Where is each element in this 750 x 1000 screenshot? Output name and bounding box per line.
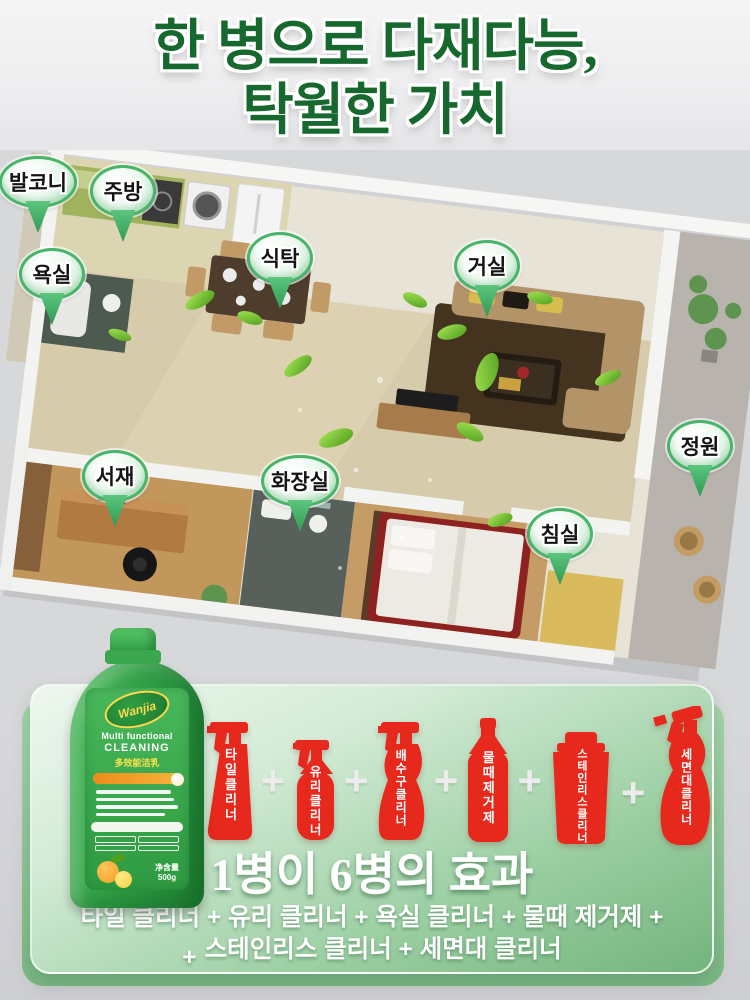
room-label: 발코니 <box>9 167 67 197</box>
room-label: 침실 <box>541 519 580 549</box>
bottle-label: 물때제거제 <box>478 751 497 826</box>
spray-bottles-row: 타일클리너 + 유리클리너 + 배수구클리너 + <box>206 702 714 846</box>
pin-tail-icon <box>25 201 51 233</box>
pin-tail-icon <box>474 285 500 317</box>
room-label: 거실 <box>468 251 507 281</box>
room-pin-toilet: 화장실 <box>261 455 339 532</box>
plus-sign: + <box>434 760 459 802</box>
washing-machine <box>184 181 231 230</box>
formula-line-2: +스테인리스 클리너 + 세면대 클리너 <box>32 934 712 966</box>
brand-logo: Wanjia <box>101 685 174 735</box>
title-line-2: 탁월한 가치 <box>0 80 750 144</box>
room-pin-study: 서재 <box>82 450 148 527</box>
pin-tail-icon <box>39 293 65 325</box>
sink-cleaner-bottle-icon: 세면대클리너 <box>652 706 714 846</box>
label-feature-lines <box>96 790 177 816</box>
pin-tail-icon <box>267 277 293 309</box>
room-label: 화장실 <box>271 466 329 496</box>
bed <box>361 511 533 640</box>
room-label: 식탁 <box>261 243 300 273</box>
room-label: 주방 <box>104 176 143 206</box>
plus-sign: + <box>182 944 196 971</box>
pin-tail-icon <box>287 500 313 532</box>
room-pin-kitchen: 주방 <box>90 165 156 242</box>
bottle-label: 스테인리스클리너 <box>573 748 589 844</box>
plus-sign: + <box>344 760 369 802</box>
bottle-label-panel: Wanjia Multi functional CLEANING 多效能洁乳 净… <box>85 688 189 890</box>
room-pin-dining-table: 식탁 <box>247 232 313 309</box>
bottle-neck <box>105 650 161 664</box>
room-pin-bathroom: 욕실 <box>19 248 85 325</box>
label-strip <box>91 822 183 832</box>
ad-image: 한 병으로 다재다능, 탁월한 가치 발코니 주방 욕실 식탁 거실 정원 서재… <box>0 0 750 1000</box>
room-pin-balcony: 발코니 <box>0 156 77 233</box>
pin-tail-icon <box>687 465 713 497</box>
page-title: 한 병으로 다재다능, 탁월한 가치 <box>0 16 750 144</box>
room-pin-bedroom: 침실 <box>527 508 593 585</box>
pin-tail-icon <box>102 495 128 527</box>
bottle-label: 유리클리너 <box>305 765 324 838</box>
product-name-en: CLEANING <box>104 742 169 754</box>
room-pin-garden: 정원 <box>667 420 733 497</box>
net-weight: 净含量500g <box>155 863 179 883</box>
room-pin-living-room: 거실 <box>454 240 520 317</box>
pin-tail-icon <box>547 553 573 585</box>
title-line-1: 한 병으로 다재다능, <box>0 16 750 80</box>
stainless-cleaner-bottle-icon: 스테인리스클리너 <box>548 732 614 846</box>
drain-cleaner-bottle-icon: 배수구클리너 <box>375 714 427 846</box>
label-fruits: 净含量500g <box>85 855 189 890</box>
bottle-cap <box>110 628 156 652</box>
room-label: 정원 <box>681 431 720 461</box>
room-label: 서재 <box>96 461 135 491</box>
plus-sign: + <box>621 772 646 814</box>
product-name-cn: 多效能洁乳 <box>114 756 159 769</box>
product-name-en: Multi functional <box>101 731 172 741</box>
label-banner <box>93 773 180 784</box>
pin-tail-icon <box>110 210 136 242</box>
bottle-label: 배수구클리너 <box>393 749 410 827</box>
plus-sign: + <box>517 760 542 802</box>
lemon-icon <box>115 871 132 888</box>
tile-cleaner-bottle-icon: 타일클리너 <box>206 714 254 846</box>
glass-cleaner-bottle-icon: 유리클리너 <box>292 734 338 846</box>
label-table <box>95 836 178 852</box>
plus-sign: + <box>261 760 286 802</box>
bottle-label: 타일클리너 <box>221 748 240 823</box>
limescale-remover-bottle-icon: 물때제거제 <box>465 718 511 846</box>
bottle-label: 세면대클리너 <box>678 748 695 826</box>
formula-text: 타일 클리너 + 유리 클리너 + 욕실 클리너 + 물때 제거제 + +스테인… <box>32 902 712 966</box>
wanjia-cleaner-bottle: Wanjia Multi functional CLEANING 多效能洁乳 净… <box>70 628 204 910</box>
room-label: 욕실 <box>33 259 72 289</box>
